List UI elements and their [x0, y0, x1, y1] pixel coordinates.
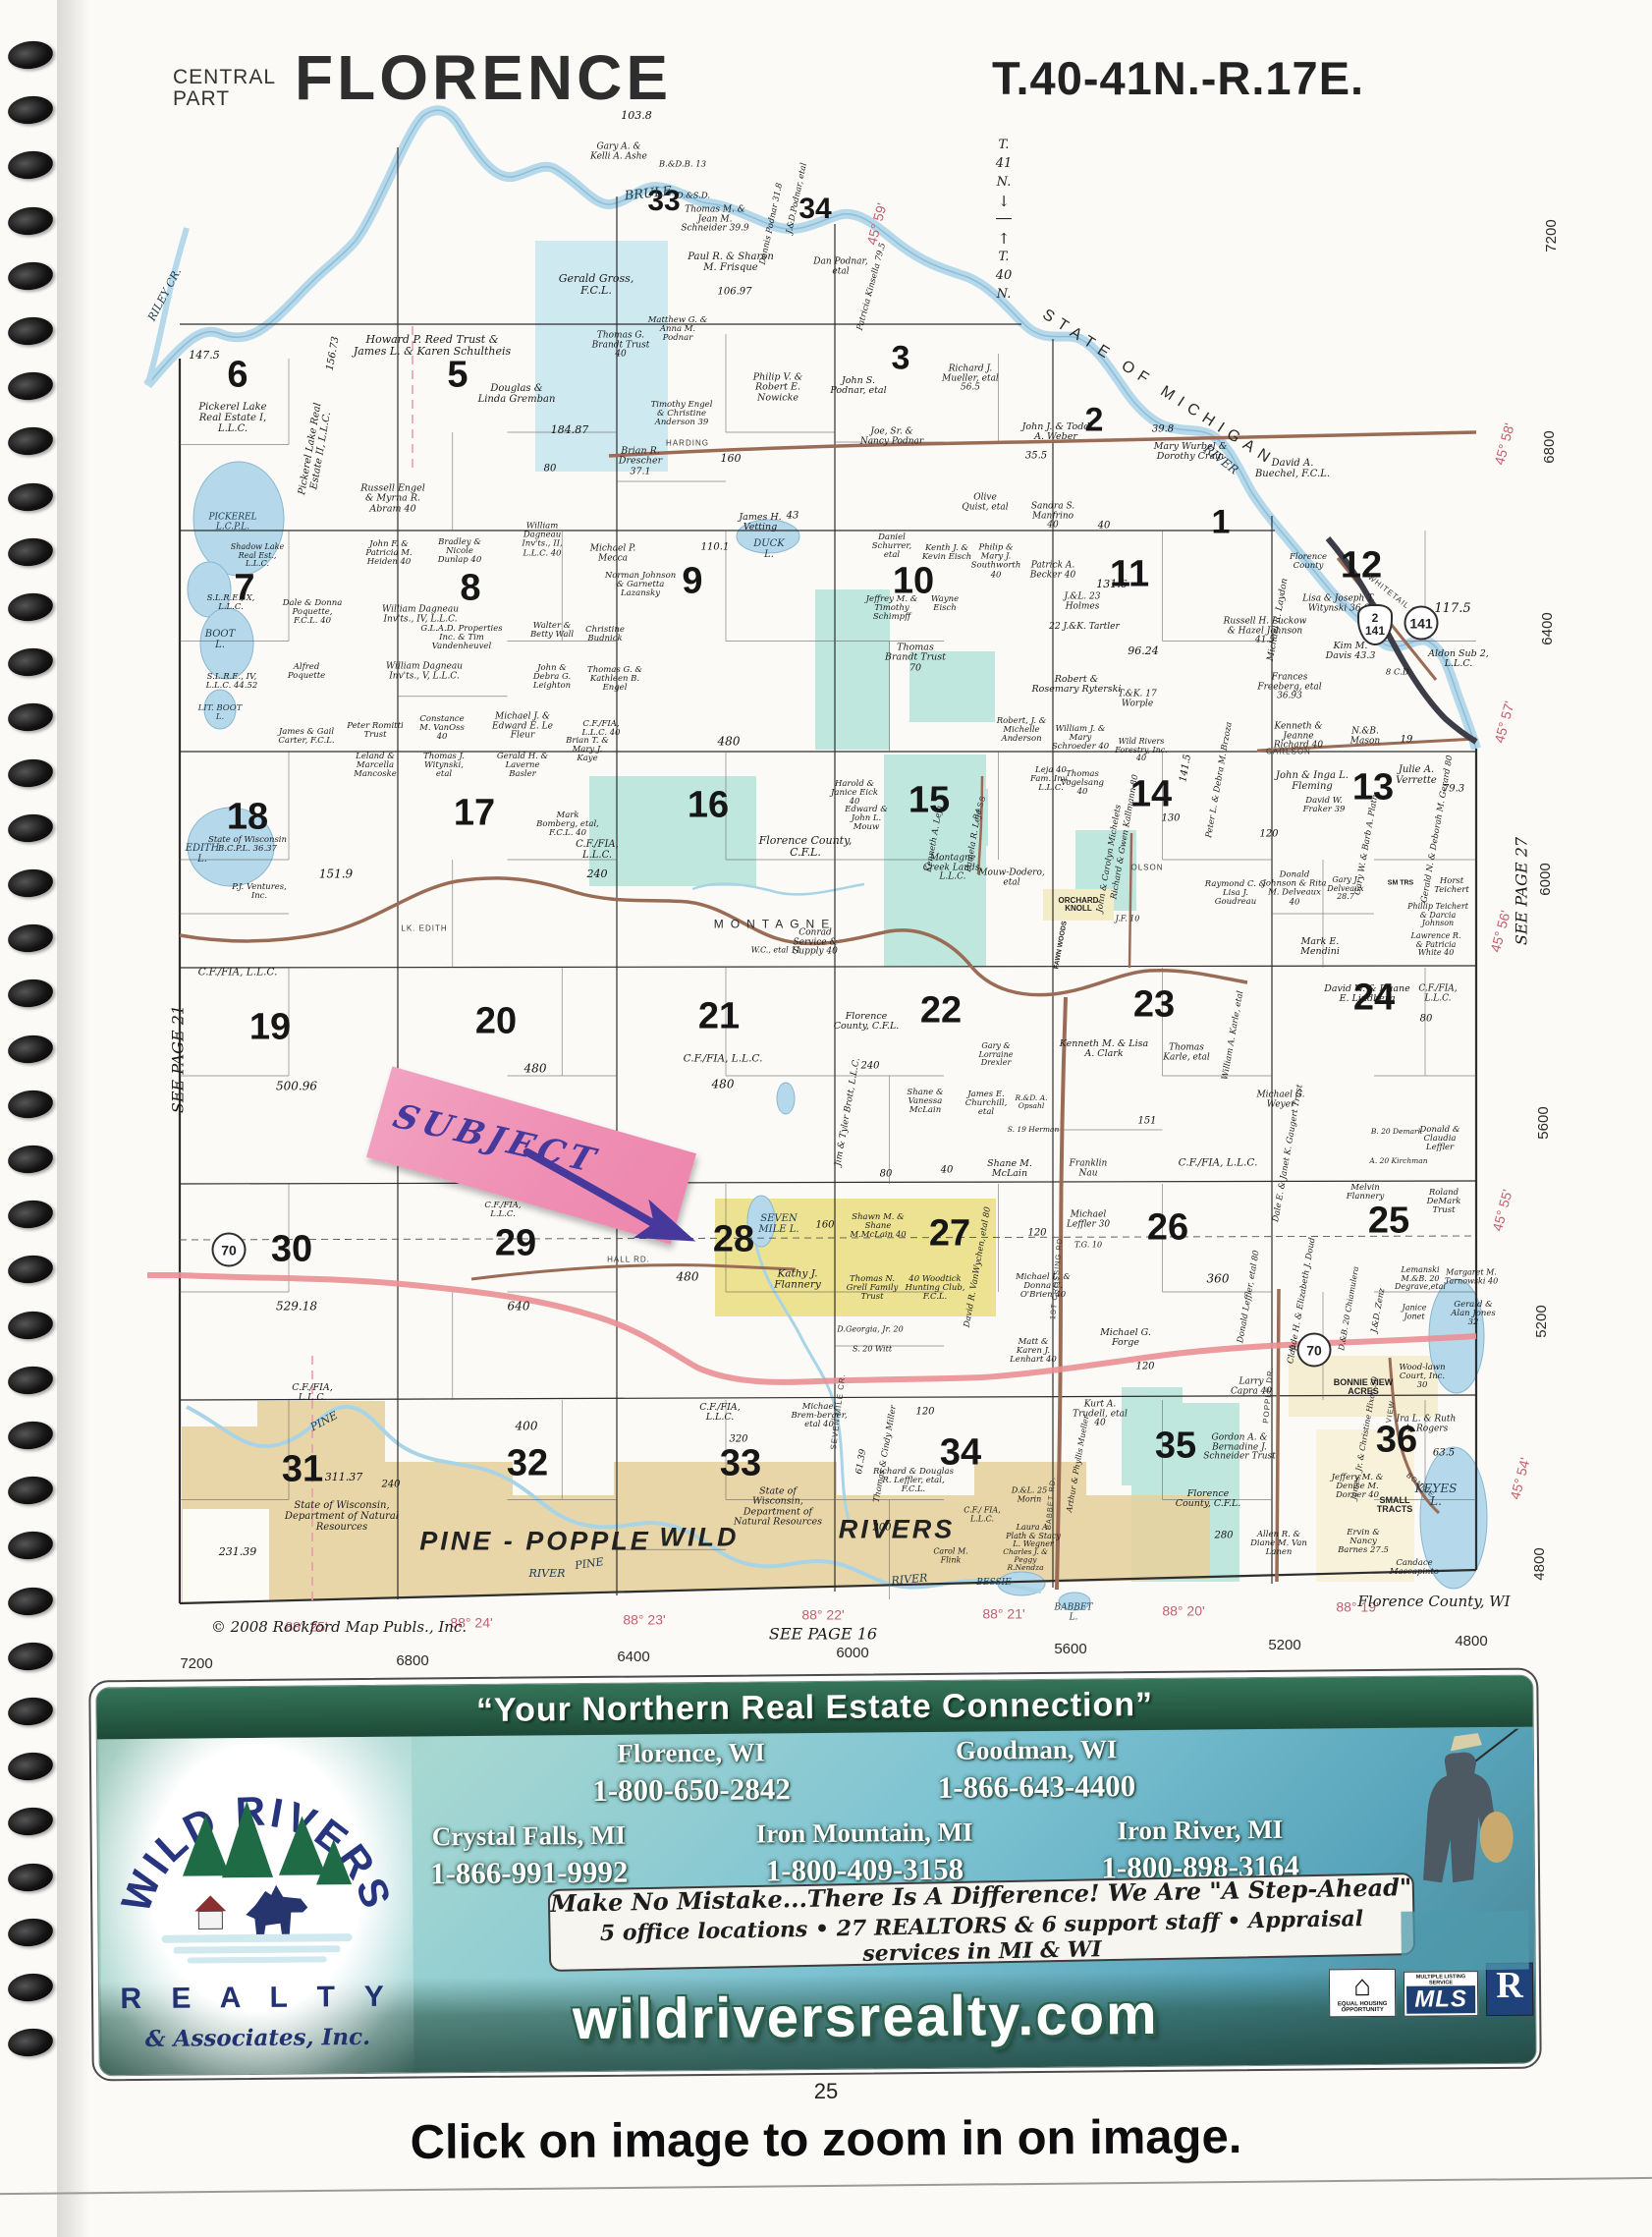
parcel-label: 240 [860, 1062, 879, 1073]
parcel-label: Janice Jonet [1392, 1304, 1437, 1320]
section-number: 18 [227, 797, 268, 839]
section-number: 29 [495, 1223, 536, 1265]
parcel-label: John S. Podnar, etal [829, 376, 888, 397]
parcel-label: 131.6 [1096, 579, 1128, 590]
parcel-label: Dale & Donna Poquette, F.C.L. 40 [282, 599, 343, 627]
parcel-label: C.F./FIA, L.L.C. [678, 1053, 768, 1064]
section-number: 16 [688, 785, 729, 827]
parcel-label: 151 [1137, 1117, 1156, 1128]
parcel-label: Matthew G. & Anna M. Podnar [647, 316, 708, 344]
parcel-label: Paul R. & Sharon M. Frisque [686, 252, 776, 274]
binding-coil [6, 1971, 54, 2003]
parcel-label: State of Wisconsin B.C.P.L. 36.37 [208, 836, 287, 854]
parcel-label: Kenneth M. & Lisa A. Clark [1059, 1039, 1149, 1060]
grid-coordinate: 6400 [617, 1650, 649, 1665]
section-number: 33 [720, 1443, 761, 1485]
grid-coordinate: 6000 [836, 1646, 868, 1661]
parcel-label: Thomas N. Grell Family Trust [844, 1275, 901, 1303]
parcel-label: Daniel Schurrer, etal [863, 533, 920, 561]
section-number: 17 [454, 793, 495, 835]
realty-ad: “Your Northern Real Estate Connection” W… [88, 1668, 1542, 2082]
parcel-label: Gordon A. & Bernadine J. Schneider Trust [1194, 1433, 1285, 1462]
section-number: 6 [227, 355, 248, 397]
parcel-label: 360 [1207, 1273, 1230, 1286]
parcel-label: Thomas Karle, etal [1158, 1043, 1215, 1062]
parcel-label: Philip V. & Robert E. Nowicke [743, 373, 813, 404]
binding-coil [6, 1695, 54, 1727]
grid-coordinate: 6800 [396, 1653, 428, 1669]
section-number: 35 [1155, 1426, 1196, 1468]
parcel-label: Phillip Teichert & Darcia Johnson [1407, 903, 1468, 928]
realty-ad-inner: “Your Northern Real Estate Connection” W… [95, 1675, 1536, 2077]
parcel-label: Leland & Marcella Mancoske [345, 753, 406, 780]
parcel-label: Philip & Mary J. Southworth 40 [967, 544, 1024, 581]
parcel-label: 160 [815, 1221, 834, 1232]
see-page-bottom: SEE PAGE 16 [769, 1625, 877, 1642]
parcel-label: Mark E. Mendini [1287, 937, 1353, 958]
parcel-label: Shawn M. & Shane M.McLain 40 [850, 1213, 907, 1241]
parcel-label: 96.24 [1128, 645, 1159, 657]
section-number: 3 [892, 340, 910, 378]
binding-coil [6, 1806, 54, 1838]
parcel-label: D.Georgia, Jr. 20 [837, 1326, 903, 1335]
parcel-label: 120 [915, 1408, 934, 1419]
parcel-label: 147.5 [189, 350, 220, 362]
parcel-label: C.F./FIA, L.L.C. [197, 967, 278, 978]
section-number: 8 [460, 568, 480, 610]
parcel-label: Russell H. Luckow & Hazel Johnson 41.5 [1222, 617, 1308, 645]
parcel-label: Shane M. McLain [974, 1159, 1045, 1180]
parcel-label: Brian R. Drescher 37.1 [610, 447, 671, 477]
parcel-label: A. 20 Kirchman [1369, 1157, 1427, 1165]
parcel-label: B.&D.B. 13 [659, 160, 706, 169]
parcel-label: 8 C.D. [1386, 668, 1411, 677]
parcel-label: 400 [516, 1421, 538, 1433]
parcel-label: 500.96 [276, 1081, 317, 1093]
parcel-label: Christine Budnick [578, 626, 632, 643]
parcel-label: BONNIE VIEW ACRES [1323, 1378, 1404, 1396]
parcel-label: 480 [524, 1063, 547, 1076]
township-marker: T. [999, 139, 1010, 152]
parcel-label: State of Wisconsin, Department of Natura… [281, 1501, 403, 1533]
road-label: OLSON [1130, 865, 1163, 873]
office-phone: 1-866-643-4400 [938, 1768, 1136, 1806]
road-label: LK. EDITH [401, 925, 447, 934]
grid-coordinate: 6400 [1540, 612, 1556, 644]
section-number: 21 [698, 996, 740, 1038]
ad-offices: Florence, WI1-800-650-2842Goodman, WI1-8… [419, 1733, 1309, 1892]
parcel-label: D.&S.D. [677, 192, 710, 200]
parcel-label: Ira L. & Ruth A. Rogers [1396, 1415, 1457, 1433]
grid-coordinate: 7200 [180, 1656, 212, 1672]
parcel-label: R.&D. A. Opsahl [1009, 1094, 1054, 1110]
parcel-label: Roland DeMark Trust [1415, 1189, 1472, 1216]
parcel-label: 160 [721, 453, 742, 465]
grid-coordinate: 5600 [1054, 1642, 1086, 1657]
parcel-label: 80 [1420, 1015, 1433, 1026]
road-label: HARDING [666, 440, 709, 449]
parcel-label: Thomas M. & Jean M. Schneider 39.9 [675, 205, 755, 234]
parcel-label: C.F./FIA, L.L.C. [562, 840, 633, 862]
parcel-label: James E. Churchill, etal [958, 1091, 1015, 1118]
realtor-logo: R [1486, 1963, 1533, 2016]
parcel-label: 151.9 [319, 868, 353, 881]
office-contact: Florence, WI1-800-650-2842 [592, 1737, 791, 1809]
parcel-label: Michael G. Forge [1090, 1328, 1161, 1349]
parcel-label: C.F./FIA, L.L.C. [282, 1383, 343, 1404]
office-city: Iron Mountain, MI [756, 1818, 973, 1850]
section-number: 19 [249, 1007, 291, 1049]
parcel-label: Horst Teichert [1426, 877, 1477, 895]
longitude-label: 88° 22' [801, 1607, 844, 1622]
grid-coordinate: 6000 [1538, 863, 1554, 895]
parcel-label: C.F./FIA, L.L.C. [1173, 1157, 1263, 1168]
zoom-caption: Click on image to zoom in on image. [0, 2106, 1652, 2173]
highway-shield: 70 [212, 1233, 247, 1267]
parcel-label: Gary & Lorraine Drexler [967, 1042, 1024, 1068]
section-number: 28 [713, 1219, 754, 1261]
parcel-label: 110.1 [701, 543, 730, 554]
parcel-label: Walter & Betty Wall [526, 622, 578, 640]
binding-coil [6, 2026, 54, 2058]
longitude-label: 88° 23' [623, 1612, 665, 1627]
ad-website: wildriversrealty.com [423, 1981, 1308, 2054]
section-number: 22 [920, 990, 962, 1033]
parcel-label: 39.8 [1152, 425, 1174, 436]
office-city: Goodman, WI [937, 1734, 1135, 1766]
parcel-label: Michael Leffler 30 [1061, 1210, 1116, 1229]
parcel-label: 130 [1161, 814, 1180, 825]
office-city: Crystal Falls, MI [430, 1820, 629, 1853]
parcel-label: Harold & Janice Eick 40 [829, 780, 880, 808]
water-label: BESSIE [976, 1579, 1011, 1589]
parcel-label: Laura A. Plath & Stacy L. Wegner [1005, 1524, 1062, 1549]
parcel-label: Kenth J. & Kevin Eisch [920, 544, 973, 562]
scan-edge-line [0, 2177, 1652, 2195]
office-city: Florence, WI [592, 1737, 791, 1769]
ad-badges: ⌂ EQUAL HOUSING OPPORTUNITY MULTIPLE LIS… [1329, 1963, 1533, 2018]
section-number: 27 [929, 1213, 970, 1256]
parcel-label: Wood-lawn Court, Inc. 30 [1395, 1364, 1450, 1391]
section-number: 23 [1133, 984, 1175, 1027]
parcel-label: Mouw-Dodero, etal [976, 868, 1047, 887]
township-marker: ↓ [998, 194, 1011, 209]
parcel-label: Kenneth & Jeanne Richard 40 [1267, 722, 1330, 751]
parcel-label: Michael P. Mecca [588, 544, 637, 563]
township-marker: ↑ [998, 231, 1011, 247]
water-label: PICKEREL L.C.P.L. [198, 513, 267, 531]
parcel-label: Allen R. & Diane M. Van Lanen [1248, 1531, 1309, 1558]
parcel-label: W.C., etal 11 [751, 947, 801, 956]
parcel-label: 320 [729, 1435, 747, 1446]
mls-logo: MULTIPLE LISTING SERVICE MLS [1404, 1971, 1478, 2017]
water-label: RIVER [529, 1568, 566, 1580]
parcel-label: Richard & Douglas R. Leffler, etal, F.C.… [873, 1468, 954, 1495]
parcel-label: Douglas & Linda Gremban [476, 384, 557, 406]
parcel-label: Robert, J. & Michelle Anderson [992, 717, 1051, 745]
section-number: 31 [282, 1449, 323, 1491]
parcel-label: 22 J.&K. Tartler [1049, 623, 1120, 633]
parcel-label: Thomas J. Witynski, etal [415, 753, 472, 780]
parcel-label: Edward & John L. Mouw [838, 806, 895, 833]
township-marker: 40 [996, 269, 1013, 283]
parcel-label: Florence County, C.F.L. [1175, 1489, 1241, 1510]
parcel-label: 43 [787, 512, 799, 523]
parcel-label: S.L.R.E., IV, L.L.C. 44.52 [203, 673, 260, 691]
binding-coil [6, 1750, 54, 1782]
parcel-label: Franklin Nau [1061, 1159, 1116, 1178]
parcel-label: Raymond C. & Lisa J. Goudreau [1203, 880, 1268, 908]
parcel-label: C.F./ FIA, L.L.C. [964, 1506, 1001, 1523]
parcel-label: S. 19 Herman [1008, 1126, 1060, 1134]
parcel-label: 529.18 [276, 1301, 317, 1314]
parcel-label: William J. & Mary Schroeder 40 [1050, 725, 1111, 753]
ad-slogan-box: Make No Mistake...There Is A Difference!… [548, 1873, 1415, 1972]
section-number: 30 [271, 1229, 312, 1271]
parcel-label: Jeffrey M. & Timothy Schimpff [860, 595, 923, 623]
parcel-label: Bradley & Nicole Dunlap 40 [430, 538, 489, 566]
road-label: HALL RD. [607, 1257, 650, 1265]
section-number: 1 [1212, 504, 1231, 542]
parcel-label: T.G. 10 [1074, 1242, 1102, 1251]
highway-shield: 141 [1404, 606, 1439, 641]
parcel-label: Mark Bomberg, etal, F.C.L. 40 [536, 811, 599, 839]
office-phone: 1-800-650-2842 [592, 1771, 791, 1809]
parcel-label: Joe, Sr. & Nancy Podnar [856, 427, 927, 446]
parcel-label: T.&K. 17 Worple [1107, 690, 1168, 708]
parcel-label: John & Debra G. Leighton [523, 664, 580, 692]
parcel-label: PINE - POPPLE [419, 1527, 651, 1555]
parcel-label: Charles J. & Peggy R.Nendza [999, 1548, 1052, 1572]
parcel-label: Aldon Sub 2, L.L.C. [1428, 649, 1489, 670]
highway-shield: 70 [1297, 1333, 1332, 1368]
parcel-label: Michael L. & Donna C. O'Brien 40 [1014, 1273, 1073, 1301]
water-label: DUCK L. [749, 539, 789, 561]
parcel-label: G.L.A.D. Properties Inc. & Tim Vandenheu… [415, 625, 508, 652]
parcel-label: 120 [1259, 830, 1278, 841]
parcel-label: Peter Romitti Trust [347, 722, 404, 740]
section-number: 34 [798, 193, 831, 226]
parcel-label: Alfred Poquette [281, 663, 332, 681]
grid-coordinate: 7200 [1544, 219, 1560, 252]
section-number: 32 [507, 1443, 548, 1485]
parcel-label: 311.37 [325, 1472, 363, 1483]
parcel-label: Mary Wurbel & Dorothy Crain [1135, 442, 1245, 463]
parcel-label: Sandra S. Manfrino 40 [1025, 502, 1080, 531]
township-marker: 41 [996, 157, 1013, 171]
parcel-label: 280 [1214, 1532, 1233, 1542]
parcel-label: Matt & Karen J. Lenhart 40 [1006, 1338, 1061, 1366]
grid-coordinate: 5200 [1534, 1305, 1550, 1337]
parcel-label: Pickerel Lake Real Estate I, L.L.C. [187, 403, 279, 434]
parcel-label: Timothy Engel & Christine Anderson 39 [647, 401, 716, 428]
parcel-label: SM TRS [1388, 880, 1413, 887]
parcel-label: Thomas Brandt Trust 70 [880, 643, 951, 674]
water-label: SEVEN MILE L. [751, 1214, 806, 1236]
parcel-label: Brian T. & Mary J. Kaye [562, 737, 613, 764]
parcel-label: 120 [1027, 1229, 1046, 1240]
water-label: LIT. BOOT L. [197, 704, 243, 722]
parcel-label: C.F./FIA, L.L.C. [689, 1403, 750, 1424]
page-number: 25 [0, 2079, 1652, 2104]
parcel-label: Michael J. & Edward E. Le Fleur [490, 712, 555, 741]
ad-banner: “Your Northern Real Estate Connection” [96, 1676, 1532, 1740]
parcel-label: 35.5 [1025, 452, 1047, 463]
see-page-right: SEE PAGE 27 [1513, 837, 1529, 945]
parcel-label: 240 [587, 868, 608, 880]
parcel-label: 106.97 [718, 288, 752, 299]
parcel-label: William Dagneau Inv'ts., IV, L.L.C. [380, 605, 461, 624]
longitude-label: 88° 20' [1162, 1603, 1204, 1618]
parcel-label: D.&L. 25 Morin [1007, 1486, 1052, 1503]
logo-associates-text: & Associates, Inc. [101, 2024, 413, 2053]
parcel-label: Constance M. VanOss 40 [414, 715, 469, 743]
logo-realty-text: R E A L T Y [101, 1981, 413, 2017]
township-marker: N. [997, 288, 1012, 302]
township-marker: ── [996, 213, 1012, 227]
parcel-label: RIVERS [839, 1515, 956, 1543]
parcel-label: Patrick A. Becker 40 [1026, 561, 1079, 580]
parcel-label: WILD [660, 1523, 740, 1551]
parcel-label: Shadow Lake Real Est., L.L.C. [227, 543, 288, 569]
parcel-label: Florence County, C.F.L. [831, 1012, 902, 1033]
grid-coordinate: 4800 [1532, 1547, 1548, 1580]
section-number: 5 [447, 355, 468, 397]
section-number: 25 [1368, 1201, 1409, 1243]
parcel-label: 240 [381, 1481, 400, 1491]
office-contact: Goodman, WI1-866-643-4400 [937, 1734, 1135, 1806]
parcel-label: Richard J. Mueller, etal 56.5 [934, 364, 1007, 393]
parcel-label: 117.5 [1434, 602, 1470, 616]
parcel-label: SMALL TRACTS [1370, 1496, 1419, 1514]
parcel-label: 103.8 [621, 110, 652, 122]
parcel-label: 80 [544, 465, 557, 475]
wild-rivers-logo-art: WILD RIVERS [99, 1737, 413, 1981]
parcel-label: Wayne Eisch [922, 595, 967, 613]
binding-coil [6, 1916, 54, 1948]
parcel-label: State of Wisconsin, Department of Natura… [733, 1487, 823, 1528]
parcel-label: P.J. Ventures, Inc. [231, 883, 288, 901]
county-credit-label: Florence County, WI [1357, 1594, 1510, 1609]
parcel-label: 40 [1098, 522, 1111, 532]
township-marker: N. [997, 176, 1012, 190]
parcel-label: Donald Johnson & Rita M. Delveaux 40 [1262, 871, 1327, 908]
parcel-label: Norman Johnson & Garnetta Lazansky [604, 572, 677, 599]
parcel-label: B. 20 Demark [1371, 1128, 1422, 1136]
parcel-label: Florence County, C.F.L. [744, 835, 866, 859]
parcel-label: S. 20 Witt [853, 1346, 892, 1355]
grid-coordinate: 6800 [1542, 430, 1558, 463]
ad-slogan-line2: 5 office locations • 27 REALTORS & 6 sup… [550, 1905, 1413, 1973]
parcel-label: 120 [1135, 1363, 1154, 1373]
parcel-label: David A. Buechel, F.C.L. [1252, 459, 1333, 480]
parcel-label: 200 [872, 1524, 891, 1535]
ad-tagline: “Your Northern Real Estate Connection” [476, 1685, 1153, 1729]
copyright-label: © 2008 Rockford Map Publs., Inc. [211, 1619, 467, 1635]
parcel-label: Lawrence R. & Patricia White 40 [1406, 932, 1465, 958]
plat-map-image[interactable]: 3334653217891011121817161514131920212223… [0, 0, 1652, 1684]
parcel-label: Kurt A. Trudell, etal 40 [1070, 1400, 1130, 1428]
parcel-label: David W. Fraker 39 [1298, 797, 1349, 814]
parcel-label: 640 [508, 1301, 530, 1314]
parcel-label: Florence County [1278, 553, 1339, 571]
section-number: 20 [475, 1001, 517, 1043]
parcel-label: Olive Quist, etal [960, 493, 1011, 512]
parcel-label: S.L.R.E., X, L.L.C. [202, 594, 259, 612]
parcel-label: John F. & Patricia M. Heiden 40 [358, 540, 419, 568]
parcel-label: Kathy J. Flannery [757, 1269, 838, 1292]
scanned-page: CENTRALPART FLORENCE T.40-41N.-R.17E. [0, 0, 1652, 2237]
parcel-label: Candace Mascapinto [1384, 1559, 1445, 1577]
parcel-label: 184.87 [551, 424, 589, 436]
parcel-label: John & Inga L. Fleming [1267, 771, 1357, 793]
parcel-label: William Dagneau Inv'ts., II, L.L.C. 40 [510, 523, 575, 559]
parcel-label: Wild Rivers Forestry, Inc. 40 [1114, 738, 1169, 763]
parcel-label: 480 [677, 1271, 699, 1284]
grid-coordinate: 5200 [1268, 1638, 1300, 1653]
parcel-label: Russell Engel & Myrna R. Abram 40 [358, 484, 427, 515]
parcel-label: ORCHARD KNOLL [1047, 897, 1110, 913]
parcel-label: Thomas G. Brandt Trust 40 [588, 331, 653, 360]
office-phone: 1-866-991-9992 [430, 1855, 629, 1892]
parcel-label: 63.5 [1433, 1449, 1455, 1460]
fisherman-photo [1400, 1729, 1529, 1971]
equal-housing-icon: ⌂ EQUAL HOUSING OPPORTUNITY [1329, 1969, 1396, 2018]
parcel-label: Margaret M. Tarnowski 40 [1441, 1268, 1502, 1285]
binding-coil [6, 1861, 54, 1893]
see-page-left: SEE PAGE 21 [169, 1005, 186, 1113]
parcel-label: Gerald & Alan Jones 32 [1445, 1301, 1502, 1328]
parcel-label: Carol M. Flink [928, 1547, 973, 1564]
parcel-label: J.F. 10 [1116, 916, 1140, 924]
parcel-label: Thomas G. & Kathleen B. Engel [585, 666, 644, 694]
parcel-label: Ervin & Nancy Barnes 27.5 [1335, 1529, 1392, 1556]
parcel-label: James H. Vetting [730, 513, 791, 533]
parcel-label: 480 [712, 1079, 735, 1091]
parcel-label: Melvin Flannery [1337, 1184, 1394, 1202]
parcel-label: Gerald H. & Laverne Basler [493, 753, 552, 780]
parcel-label: 40 [941, 1166, 954, 1177]
parcel-label: Howard P. Reed Trust & James L. & Karen … [353, 334, 512, 358]
parcel-label: Gerald Gross, F.C.L. [551, 273, 641, 297]
parcel-label: Michael Brem-berger, etal 40 [791, 1403, 848, 1430]
parcel-label: Shane & Vanessa McLain [897, 1089, 954, 1116]
parcel-label: J.&L. 23 Holmes [1047, 592, 1118, 611]
parcel-label: N.&B. Mason [1340, 727, 1391, 746]
office-city: Iron River, MI [1101, 1815, 1299, 1847]
office-contact: Iron Mountain, MI1-800-409-3158 [756, 1818, 973, 1889]
parcel-label: 19 [1401, 736, 1413, 747]
parcel-label: 80 [880, 1170, 893, 1181]
grid-coordinate: 4800 [1455, 1634, 1487, 1650]
parcel-label: John J. & Todd A. Weber [1019, 422, 1093, 443]
wild-rivers-logo: WILD RIVERS R E A L T Y & Associates, In… [99, 1737, 414, 2076]
parcel-label: James & Gail Carter, F.C.L. [278, 728, 335, 746]
grid-coordinate: 5600 [1536, 1106, 1552, 1139]
township-marker: T. [999, 251, 1010, 264]
parcel-label: Thomas Vogelsang 40 [1056, 770, 1109, 798]
parcel-label: 231.39 [219, 1546, 257, 1558]
parcel-label: 480 [718, 736, 741, 749]
parcel-label: Larry Capra 40 [1226, 1377, 1277, 1396]
section-number: 9 [682, 561, 702, 603]
water-label: BABBET L. [1051, 1603, 1096, 1622]
longitude-label: 88° 21' [982, 1606, 1024, 1621]
parcel-label: 40 Woodtick Hunting Club, F.C.L. [905, 1275, 965, 1303]
parcel-label: Gary A. & Kelli A. Ashe [588, 142, 649, 161]
parcel-label: David W. & Duane E. Lindberg [1322, 984, 1412, 1005]
parcel-label: Gary J. Delveaux 28.7 [1319, 876, 1372, 902]
